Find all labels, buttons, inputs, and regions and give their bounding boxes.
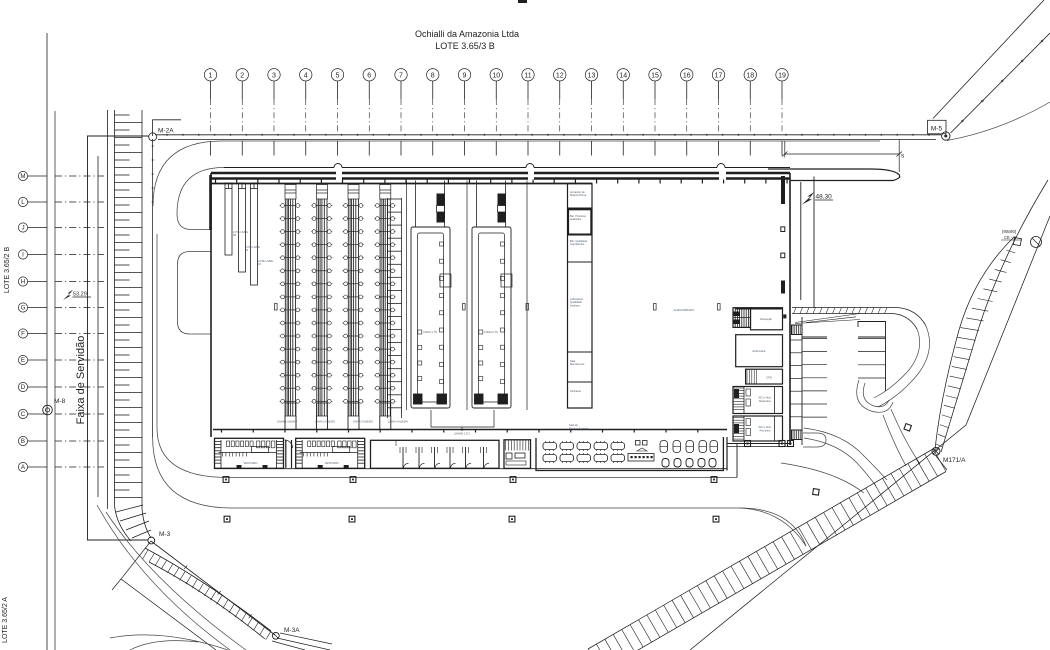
svg-text:LINHA 4 ALB/DIV: LINHA 4 ALB/DIV xyxy=(388,420,408,424)
svg-text:Ingredientes: Ingredientes xyxy=(570,242,585,246)
svg-text:WC e Vest.: WC e Vest. xyxy=(759,396,772,400)
svg-text:9: 9 xyxy=(463,72,467,79)
svg-text:M171/A: M171/A xyxy=(943,457,966,464)
svg-text:LINHA 2 TS: LINHA 2 TS xyxy=(484,330,498,334)
svg-text:LINHA 3 ALB/DIV: LINHA 3 ALB/DIV xyxy=(353,420,373,424)
svg-text:LINHAS 1 E 2: LINHAS 1 E 2 xyxy=(454,432,471,436)
svg-text:Sala de: Sala de xyxy=(569,423,578,427)
svg-text:M-8: M-8 xyxy=(54,398,66,405)
svg-text:8: 8 xyxy=(431,72,435,79)
svg-text:14: 14 xyxy=(619,72,627,79)
svg-text:LINHA 2 ALB/DIV: LINHA 2 ALB/DIV xyxy=(315,420,335,424)
svg-text:M: M xyxy=(20,173,25,180)
svg-text:ALMOXARIFADO: ALMOXARIFADO xyxy=(674,308,694,312)
svg-text:16: 16 xyxy=(683,72,691,79)
svg-text:17: 17 xyxy=(715,72,723,79)
svg-text:Masculino: Masculino xyxy=(759,399,771,403)
svg-text:1: 1 xyxy=(209,72,213,79)
svg-text:M-2A: M-2A xyxy=(158,128,174,135)
svg-text:Recepção: Recepção xyxy=(760,317,772,321)
svg-text:M-3: M-3 xyxy=(159,531,171,538)
svg-text:M-3A: M-3A xyxy=(284,627,300,634)
svg-text:2: 2 xyxy=(240,72,244,79)
svg-text:LINHA 1 ALB/DIV: LINHA 1 ALB/DIV xyxy=(277,420,297,424)
svg-text:11: 11 xyxy=(524,72,531,79)
svg-text:LOTE 3.65/2 A: LOTE 3.65/2 A xyxy=(2,597,9,643)
svg-text:Almirante: Almirante xyxy=(570,389,582,393)
svg-text:F: F xyxy=(21,331,25,338)
svg-text:5: 5 xyxy=(336,72,340,79)
svg-text:6: 6 xyxy=(367,72,371,79)
svg-text:G: G xyxy=(21,305,26,312)
svg-text:(90x90): (90x90) xyxy=(1002,229,1017,234)
svg-text:Materia Prima: Materia Prima xyxy=(570,193,587,197)
svg-text:D: D xyxy=(21,384,26,391)
svg-text:Manutencao: Manutencao xyxy=(570,362,585,366)
svg-text:15: 15 xyxy=(651,72,659,79)
svg-text:Produto Acabado: Produto Acabado xyxy=(569,426,589,430)
svg-text:CPD: CPD xyxy=(766,376,772,380)
svg-text:3: 3 xyxy=(272,72,276,79)
svg-text:C: C xyxy=(21,411,26,418)
svg-text:Feminino: Feminino xyxy=(760,429,771,433)
svg-text:B: B xyxy=(21,438,25,445)
svg-text:LOTE 3.65/3 B: LOTE 3.65/3 B xyxy=(435,41,495,51)
svg-text:13: 13 xyxy=(588,72,596,79)
svg-text:E: E xyxy=(21,357,25,364)
svg-text:Analises: Analises xyxy=(570,303,581,307)
svg-text:12: 12 xyxy=(556,72,564,79)
svg-text:M-5: M-5 xyxy=(931,126,943,133)
svg-text:LINHA 1 TS: LINHA 1 TS xyxy=(423,330,437,334)
svg-text:53.29: 53.29 xyxy=(73,292,87,298)
svg-text:48.30: 48.30 xyxy=(816,194,833,201)
svg-text:18: 18 xyxy=(746,72,754,79)
svg-text:Faixa de Servidão: Faixa de Servidão xyxy=(75,336,87,425)
svg-text:Enfermaria: Enfermaria xyxy=(753,349,766,353)
svg-text:Ochialli da Amazonia Ltda: Ochialli da Amazonia Ltda xyxy=(415,29,519,39)
svg-text:acabados: acabados xyxy=(570,217,582,221)
svg-text:7: 7 xyxy=(399,72,403,79)
svg-text:VESTIARIO: VESTIARIO xyxy=(244,461,258,465)
svg-text:19: 19 xyxy=(778,72,786,79)
svg-text:WC e Vest.: WC e Vest. xyxy=(759,425,772,429)
svg-text:L: L xyxy=(21,199,25,206)
svg-text:10: 10 xyxy=(492,72,500,79)
svg-text:VESTIARIO: VESTIARIO xyxy=(325,461,339,465)
svg-text:J: J xyxy=(21,225,24,232)
svg-text:4: 4 xyxy=(304,72,308,79)
svg-text:I: I xyxy=(22,252,24,259)
svg-text:H: H xyxy=(21,279,25,286)
svg-text:LOTE 3.65/2 B: LOTE 3.65/2 B xyxy=(4,247,11,294)
